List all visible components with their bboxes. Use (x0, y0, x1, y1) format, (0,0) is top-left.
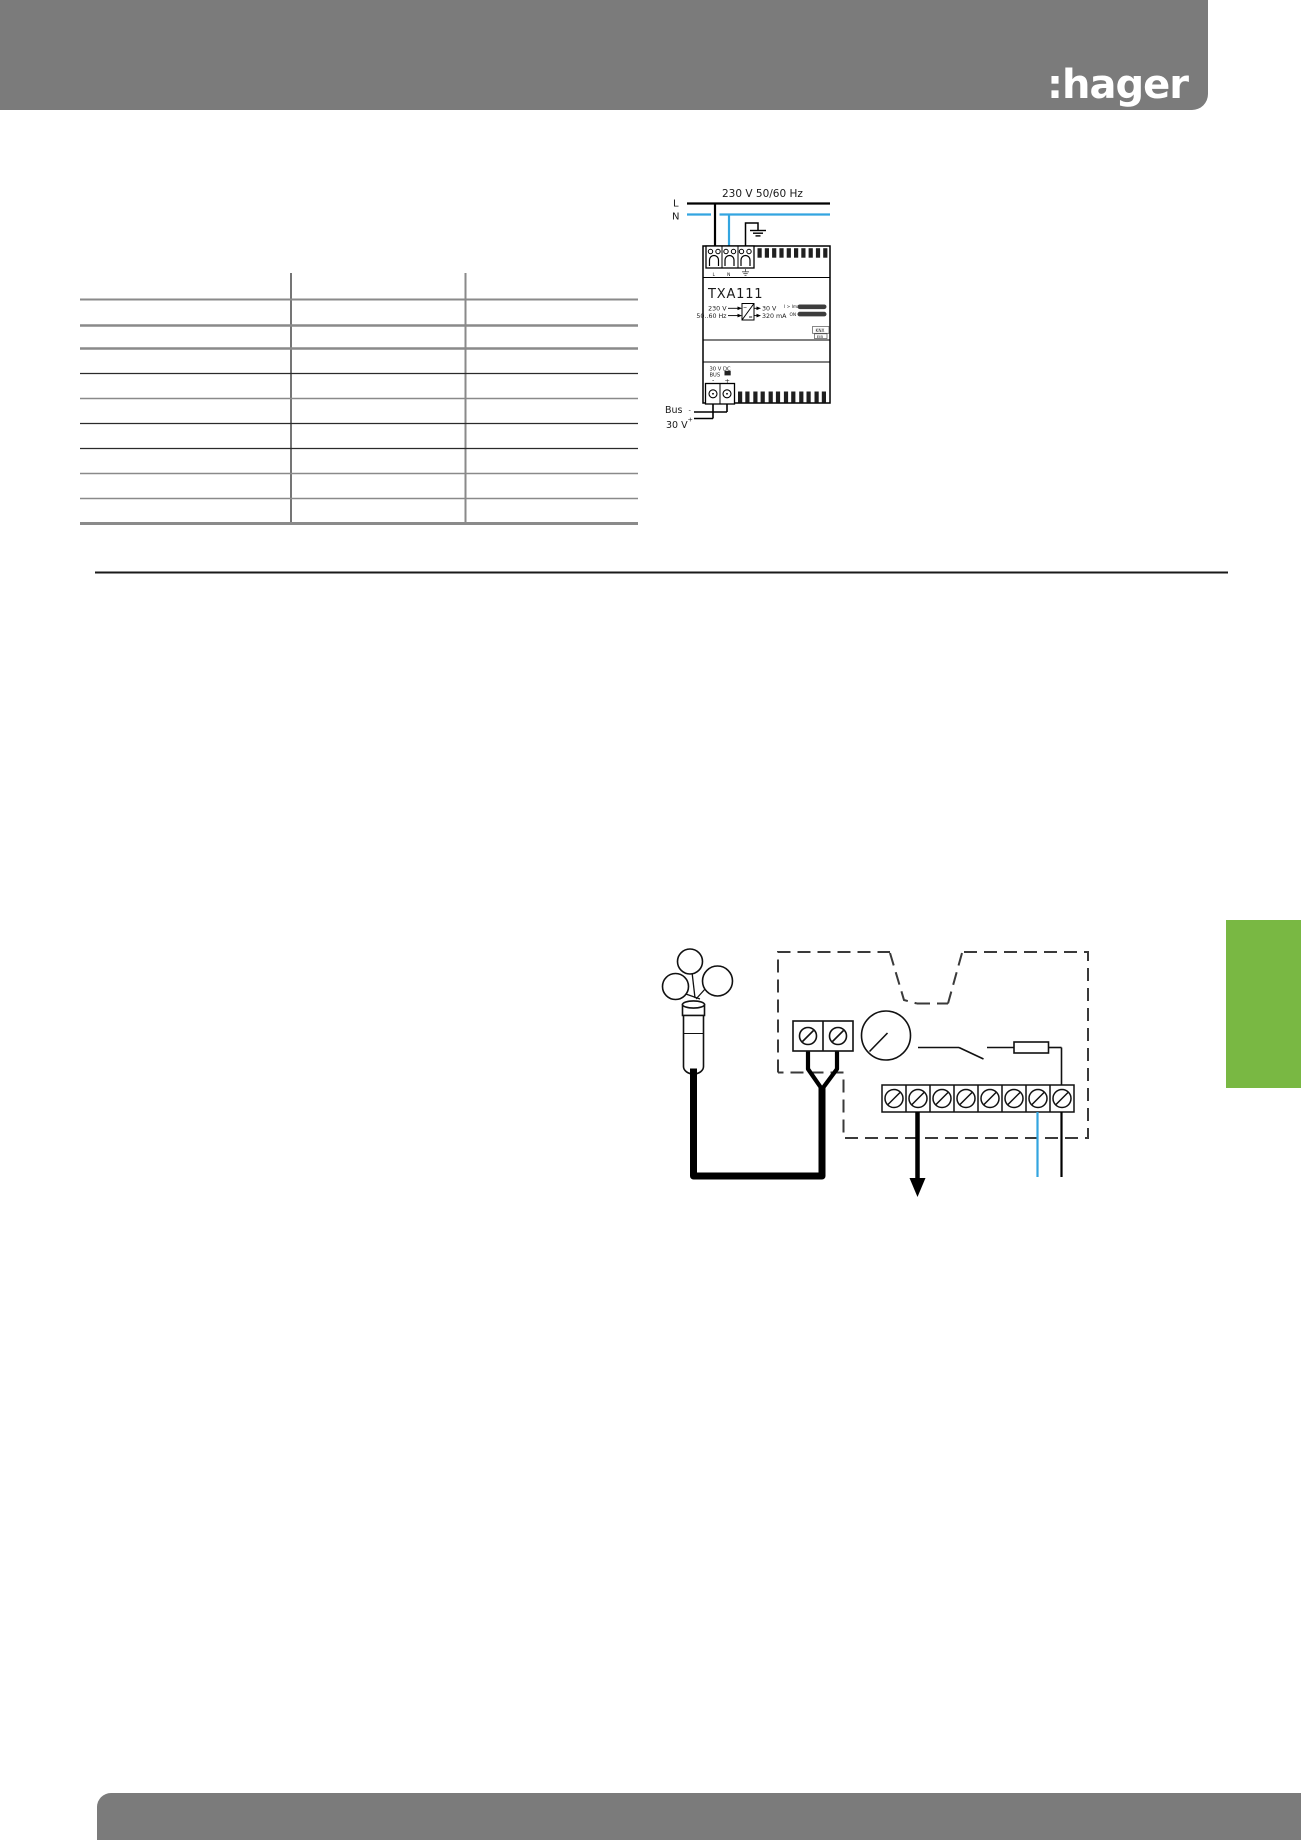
terminal-n-label: N (727, 272, 730, 278)
adjustment-dial (862, 1011, 911, 1060)
secondary-voltage: 30 V (762, 306, 777, 313)
sensor-cable (694, 1051, 838, 1176)
section-tab-green (1226, 920, 1301, 1088)
svg-text:EIB: EIB (817, 334, 824, 339)
power-supply-diagram: 230 V 50/60 Hz L N (665, 188, 830, 431)
device-outline (703, 246, 830, 403)
primary-voltage: 230 V (708, 306, 727, 313)
output-arrow-wire (910, 1112, 926, 1197)
svg-text:~: ~ (743, 306, 747, 312)
svg-text:=: = (749, 315, 753, 321)
footer-bar (97, 1793, 1301, 1840)
bus-icon (725, 371, 731, 376)
primary-frequency: 50..60 Hz (696, 313, 727, 320)
relay-contact (918, 1048, 984, 1060)
ac-dc-converter-icon: ~ = (742, 304, 754, 321)
on-led (798, 312, 827, 317)
fuse-icon (987, 1042, 1062, 1085)
bus-wire-label: Bus (665, 405, 683, 416)
earth-icon (750, 231, 766, 236)
supply-voltage-label: 230 V 50/60 Hz (722, 188, 803, 200)
page-artwork: 230 V 50/60 Hz L N (0, 0, 1301, 1840)
terminal-l-label: L (713, 272, 716, 278)
output-terminal-strip (882, 1085, 1074, 1112)
secondary-current: 320 mA (762, 313, 787, 320)
bus-wire-minus: - (689, 407, 692, 415)
wind-sensor-diagram (663, 949, 1089, 1197)
bus-wires (694, 404, 727, 419)
bus-terminal-block (706, 384, 735, 405)
input-terminal-block (706, 246, 754, 268)
overcurrent-led (798, 305, 827, 310)
phase-label: L (673, 199, 679, 210)
spec-table (80, 273, 638, 524)
device-model: TXA111 (707, 287, 763, 302)
neutral-label: N (672, 212, 679, 223)
bus-wire-plus: + (688, 416, 693, 424)
sensor-terminal-block (793, 1021, 853, 1051)
neutral-wire (687, 215, 830, 250)
on-led-label: ON (790, 312, 797, 318)
anemometer-icon (663, 949, 733, 1074)
bus-wire-voltage: 30 V (666, 420, 688, 431)
